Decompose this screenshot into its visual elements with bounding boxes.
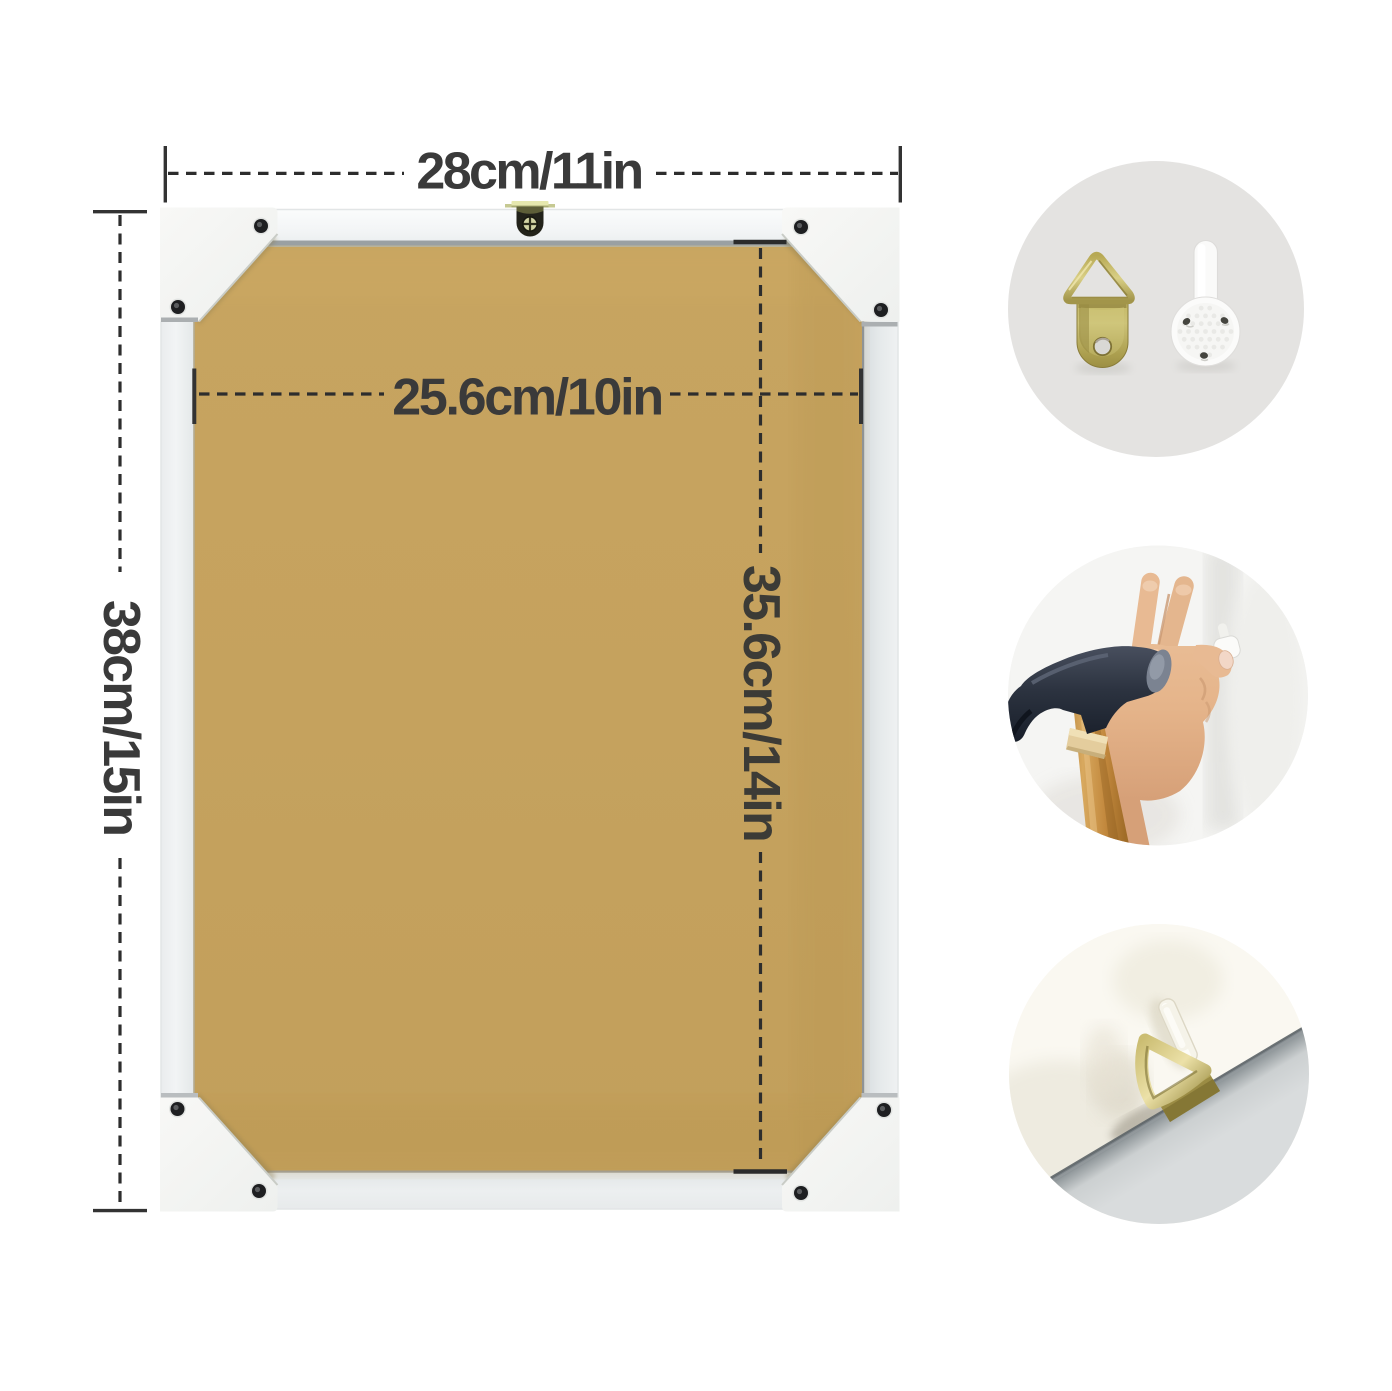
svg-text:38cm/15in: 38cm/15in [92,600,150,835]
svg-text:35.6cm/14in: 35.6cm/14in [732,565,790,841]
svg-text:28cm/11in: 28cm/11in [416,143,641,201]
svg-text:25.6cm/10in: 25.6cm/10in [392,369,662,427]
